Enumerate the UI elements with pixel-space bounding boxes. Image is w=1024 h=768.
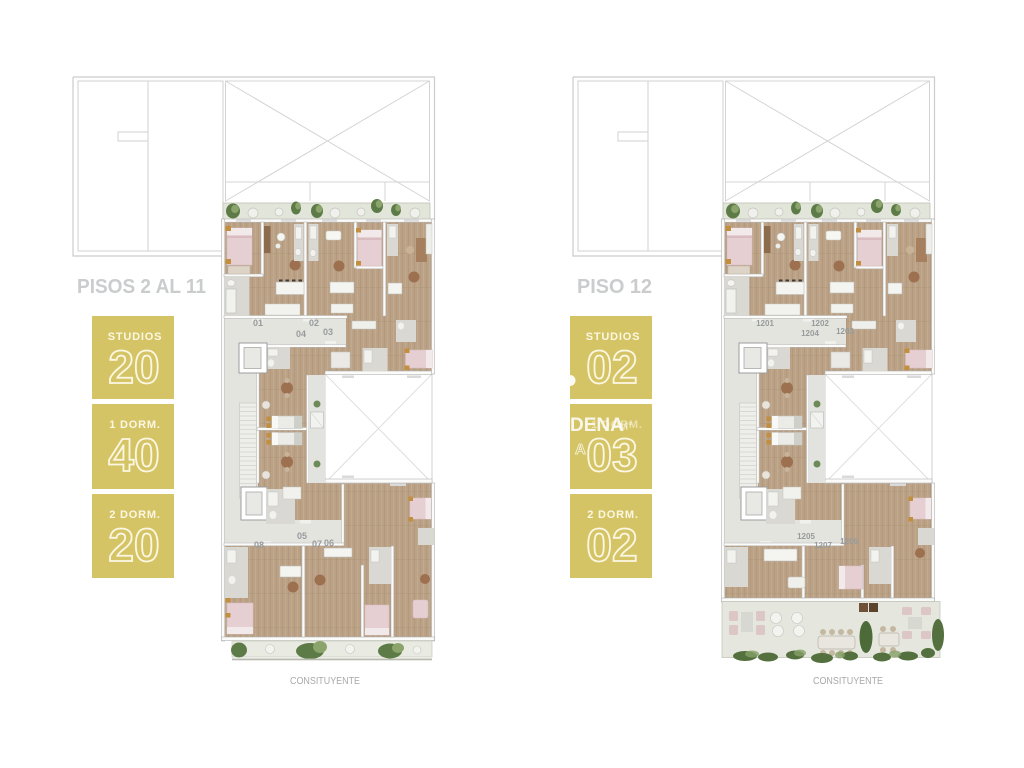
svg-text:08: 08	[254, 540, 264, 550]
svg-text:20: 20	[108, 519, 159, 571]
svg-text:1202: 1202	[811, 319, 829, 328]
svg-text:1205: 1205	[797, 532, 815, 541]
svg-text:06: 06	[324, 538, 334, 548]
svg-text:1207: 1207	[814, 541, 832, 550]
svg-text:05: 05	[297, 531, 307, 541]
svg-text:DENA: DENA	[570, 415, 624, 436]
svg-text:03: 03	[586, 429, 637, 481]
svg-text:M°: M°	[619, 421, 633, 433]
svg-text:CONSITUYENTE: CONSITUYENTE	[813, 676, 883, 687]
svg-text:02: 02	[309, 318, 319, 328]
svg-text:20: 20	[108, 341, 159, 393]
svg-text:1203: 1203	[836, 327, 854, 336]
svg-text:04: 04	[296, 329, 306, 339]
svg-text:02: 02	[586, 519, 637, 571]
svg-text:CONSITUYENTE: CONSITUYENTE	[290, 676, 360, 687]
svg-text:1206: 1206	[840, 537, 858, 546]
svg-text:1201: 1201	[756, 319, 774, 328]
svg-text:03: 03	[323, 327, 333, 337]
svg-text:PISO 12: PISO 12	[577, 276, 652, 298]
svg-text:01: 01	[253, 318, 263, 328]
svg-text:40: 40	[108, 429, 159, 481]
svg-text:PISOS 2 AL 11: PISOS 2 AL 11	[77, 276, 206, 298]
svg-text:02: 02	[586, 341, 637, 393]
svg-text:1204: 1204	[801, 329, 819, 338]
svg-text:A: A	[575, 441, 586, 458]
svg-text:07: 07	[312, 539, 322, 549]
